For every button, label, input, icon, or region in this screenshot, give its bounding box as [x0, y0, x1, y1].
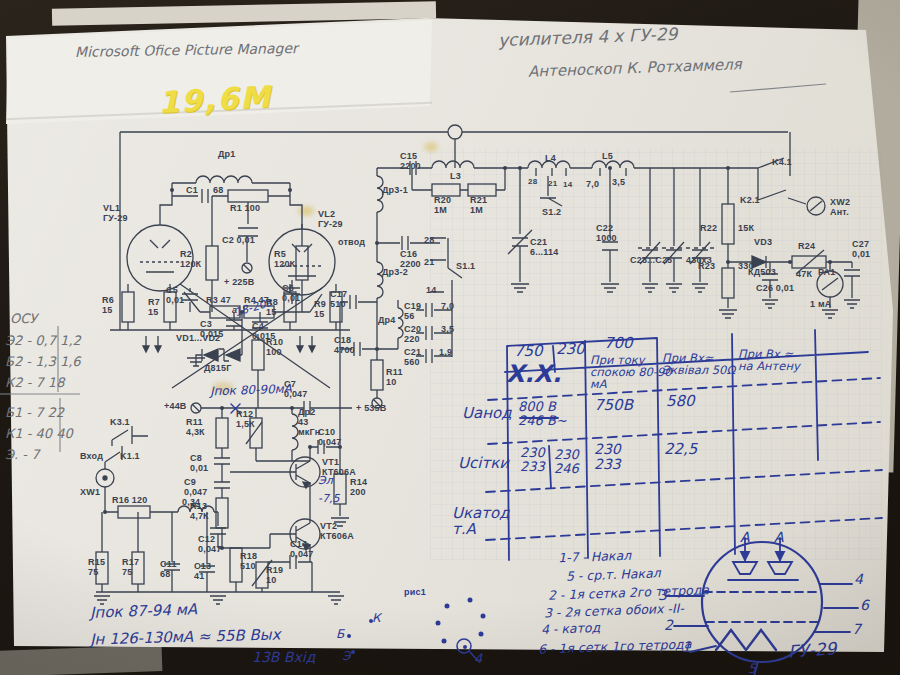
label-c12: C12 0,047	[198, 535, 222, 555]
label-k3-1: K3.1	[110, 418, 130, 428]
table-row-ukatod: Uкатод т.А	[452, 506, 510, 538]
label-r17: R17 75	[122, 558, 139, 578]
table-row-uanod: Uанод	[462, 406, 512, 422]
label-r7: R7 15	[148, 298, 160, 318]
label-r12: R12 1,5К	[236, 410, 255, 430]
table-col-dummy-load: При Вх≈ Эквівал 50Ω	[662, 352, 735, 376]
margin-note: Э. - 7	[5, 448, 39, 463]
uanod-load: 750В	[594, 398, 633, 414]
table-row-usetki: Uсітки	[458, 456, 509, 472]
label-k2-1: K2.1	[740, 196, 760, 206]
label-c10: C10 0,047	[318, 428, 342, 448]
label-c5: C5 0,01	[166, 286, 184, 306]
label-xw2: XW2 Ант.	[830, 198, 850, 218]
label-c17: C17 510	[330, 290, 347, 310]
table-col-antenna: При Вх ≈ на Антену	[738, 348, 800, 372]
tube-pin-6: 6	[860, 598, 869, 613]
label-vd3: VD3	[754, 238, 772, 248]
tube-pin-2: 2	[664, 618, 673, 633]
label-r5: R5 120К	[274, 250, 295, 270]
label-k4-1: K4.1	[772, 158, 792, 168]
label-pa1-value: 1 мА	[810, 300, 831, 310]
label-dr4: Др4	[378, 316, 396, 326]
label-535v: + 535В	[356, 404, 386, 414]
tube-pin-1: 1	[682, 640, 691, 655]
label-c19: C19 56	[404, 302, 421, 322]
label-225v: + 225В	[224, 278, 254, 288]
table-header-750: 750	[514, 344, 543, 360]
label-r3: R3 47	[206, 296, 231, 306]
label-l5: L5	[602, 152, 613, 162]
label-r22: R22	[700, 224, 717, 234]
usetki-antenna: 22,5	[664, 442, 697, 458]
label-c9: C9 0,047	[184, 478, 208, 498]
pinlist-line: 1-7 - Накал	[558, 549, 632, 565]
tube-anode-a1: А	[740, 530, 750, 545]
label-c6: C6 0,01	[282, 284, 300, 304]
label-r1: R1 100	[230, 204, 260, 214]
label-c20-tap: 3,5	[441, 325, 454, 335]
label-d815: Д815Г	[204, 364, 232, 374]
label-xw1: XW1	[80, 488, 100, 498]
label-vhod: Вход	[80, 452, 103, 462]
label-44v: +44В	[164, 402, 187, 412]
label-dr1: Др1	[218, 150, 236, 160]
label-c2: C2 0,01	[222, 236, 255, 246]
label-c15: C15 2200	[400, 152, 421, 172]
label-otvod: отвод	[338, 238, 365, 248]
label-c21b: C21 560	[404, 348, 421, 368]
label-r20: R20 1М	[434, 196, 451, 216]
label-tap-21: 21	[424, 258, 434, 268]
label-r14: R14 200	[350, 478, 367, 498]
pinlist-line: 4 - катод	[541, 621, 601, 636]
table-header-230: 230	[556, 342, 585, 358]
label-r24-value: 47К	[796, 270, 812, 280]
label-c13: C13 41	[194, 562, 211, 582]
margin-note: Б1 - 7 22	[5, 406, 64, 421]
label-c21: C21 6...114	[530, 238, 558, 258]
label-vl2: VL2 ГУ-29	[318, 210, 343, 230]
label-r11b: R11 10	[386, 368, 403, 388]
label-c20: C20 220	[404, 325, 421, 345]
label-point-a: а	[232, 306, 237, 316]
label-r13: R13 4,7К	[190, 502, 209, 522]
label-l3: L3	[450, 172, 461, 182]
label-l4-tap-28: 28	[528, 178, 537, 187]
label-c18: C18 4700	[334, 336, 355, 356]
margin-note: ОСУ	[10, 312, 37, 327]
label-r2: R2 120К	[180, 250, 201, 270]
margin-note: К1 - 40 40	[5, 427, 73, 442]
label-s1-1: S1.1	[456, 262, 475, 272]
label-tap-14: 14	[426, 286, 436, 296]
label-c14: C14 0,047	[290, 540, 314, 560]
usetki-xx-a: 230 233	[520, 446, 545, 473]
label-l5-tap-35: 3,5	[612, 178, 625, 188]
tube-pin-3: 3	[658, 588, 667, 603]
note-input: 13В Вхід	[252, 650, 315, 665]
pin-letter-k: К	[372, 612, 381, 625]
label-r18: R18 510	[240, 552, 257, 572]
usetki-load: 230 233	[594, 442, 621, 471]
label-c1-value: 68	[213, 186, 223, 196]
label-l4-tap-14: 14	[563, 181, 572, 190]
uanod-antenna: 580	[666, 394, 695, 410]
tube-name: ГУ-29	[787, 640, 837, 661]
label-c7: C7 0,047	[284, 380, 308, 400]
label-dr3-2: Др3-2	[382, 268, 408, 278]
label-r24: R24	[798, 242, 815, 252]
note-band-marker: 19,6М	[157, 79, 273, 120]
note-minus75: -7,5	[318, 493, 339, 505]
label-c19-tap: 7,0	[441, 302, 454, 312]
label-dr3-1: Др3-1	[382, 186, 408, 196]
tube-pin-4: 4	[854, 572, 863, 587]
table-header-700: 700	[604, 336, 633, 352]
label-k1-1: K1.1	[120, 452, 140, 462]
label-c23-c25: C23...C25	[630, 256, 672, 266]
label-c27: C27 0,01	[852, 240, 870, 260]
margin-note: К2 - 7 18	[5, 376, 64, 391]
label-c1: C1	[186, 186, 198, 196]
usetki-xx-b: 230 246	[554, 448, 579, 475]
label-r21: R21 1М	[470, 196, 487, 216]
pinlist-line: 5 - ср.т. Накал	[566, 566, 661, 582]
label-vt1: VT1 КТ606А	[322, 458, 356, 478]
label-c21b-tap: 1,9	[439, 348, 452, 358]
label-r16: R16 120	[112, 496, 147, 506]
label-c8: C8 0,01	[190, 454, 208, 474]
uanod-xx: 800 В 246 В~	[518, 400, 567, 427]
label-tap-28: 28	[424, 236, 434, 246]
label-r10: R10 100	[266, 338, 283, 358]
label-l5-tap-70: 7,0	[586, 180, 599, 190]
label-l4: L4	[545, 154, 556, 164]
label-r11a: R11 4,3К	[186, 418, 205, 438]
label-c22: C22 1000	[596, 224, 617, 244]
label-r19: R19 10	[266, 566, 283, 586]
label-r6: R6 15	[102, 296, 114, 316]
label-pa1: PA1	[818, 268, 835, 278]
label-s1-2: S1.2	[542, 208, 561, 218]
label-r23-value: 330	[738, 262, 754, 272]
note-current: Jпок 87-94 мА	[90, 602, 198, 621]
label-vl1: VL1 ГУ-29	[103, 204, 128, 224]
label-c11: C11 68	[160, 560, 177, 580]
note-idle-current: Jпок 80-90мА	[210, 383, 292, 398]
pin-letter-e: Э	[342, 650, 350, 663]
figure-label: рис1	[404, 588, 426, 598]
label-r15: R15 75	[88, 558, 105, 578]
table-col-idle-current: При току спокою 80-90 мА	[590, 354, 672, 390]
tube-pin-7: 7	[852, 622, 861, 637]
label-r8: R8 15	[266, 298, 278, 318]
label-vd1-vd2: VD1...VD2	[176, 334, 220, 344]
label-r9: R9 15	[314, 300, 326, 320]
tube-pin-5: 5	[748, 662, 756, 675]
label-c26: C26 0,01	[756, 284, 794, 294]
label-r22-value: 15К	[738, 224, 754, 234]
margin-note: Б2 - 1,3 1,6	[5, 355, 81, 370]
label-vt2: VT2 КТ606А	[320, 522, 354, 542]
label-l4-tap-21: 21	[548, 180, 557, 189]
table-col-xx: Х.Х.	[506, 362, 561, 387]
tube-anode-a2: А	[774, 530, 784, 545]
margin-note: Э2 - 0,7 1,2	[5, 334, 81, 349]
pin-letter-b: Б	[336, 628, 344, 641]
label-dr2: Др2 43 мкГн	[298, 408, 320, 438]
figure-pin-4: 4	[474, 652, 482, 666]
label-r23: R23	[698, 262, 715, 272]
